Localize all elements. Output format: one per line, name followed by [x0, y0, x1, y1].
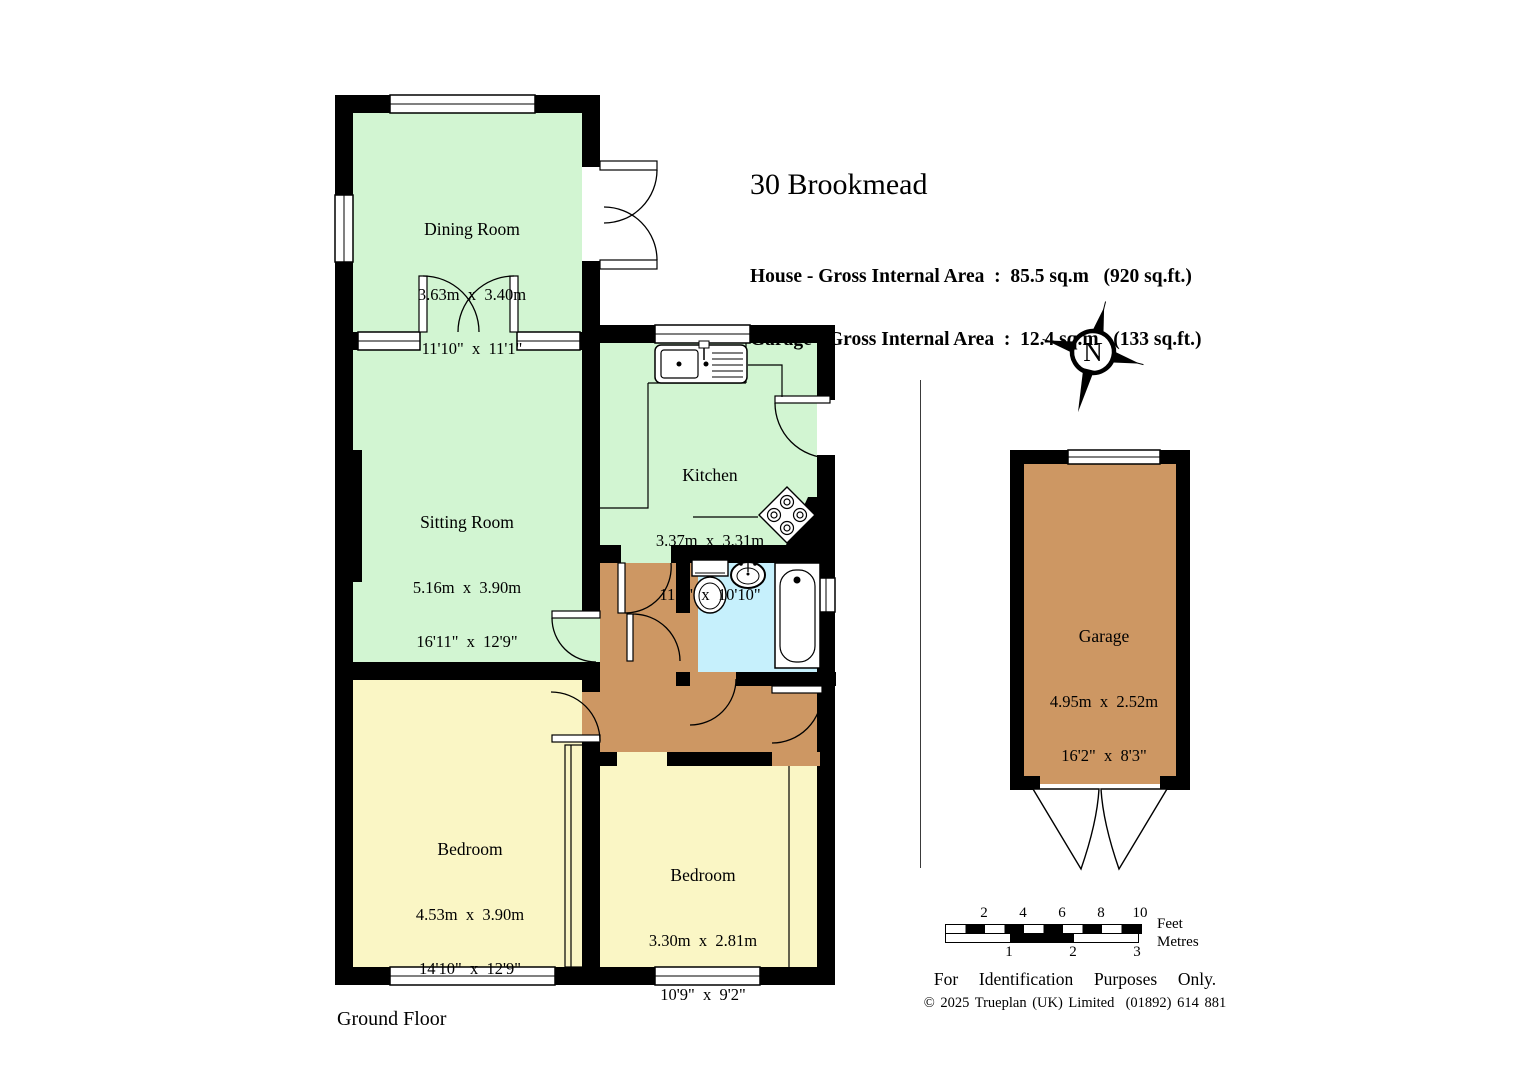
room-dims-metric: 3.37m x 3.31m	[656, 532, 764, 550]
garage-area-line: Garage - Gross Internal Area : 12.4 sq.m…	[750, 329, 1202, 350]
room-dims-imperial: 10'9" x 9'2"	[649, 986, 757, 1004]
room-dims-metric: 4.53m x 3.90m	[416, 906, 524, 924]
room-dims-metric: 3.30m x 2.81m	[649, 932, 757, 950]
metres-unit-label: Metres	[1157, 934, 1199, 951]
room-label-bedroom2: Bedroom 3.30m x 2.81m 10'9" x 9'2"	[649, 829, 757, 1040]
area-summary: House - Gross Internal Area : 85.5 sq.m …	[750, 224, 1202, 392]
bath	[775, 563, 820, 668]
room-name: Bedroom	[416, 839, 524, 860]
room-name: Garage	[1050, 626, 1158, 647]
floor-label: Ground Floor	[337, 1008, 446, 1031]
room-label-dining: Dining Room 3.63m x 3.40m 11'10" x 11'1"	[418, 183, 526, 394]
feet-tick: 4	[1019, 905, 1027, 922]
scale-bar: 2 4 6 8 10 1 2 3 Feet Metres	[945, 905, 1205, 965]
room-dims-metric: 5.16m x 3.90m	[413, 579, 521, 597]
room-label-bedroom1: Bedroom 4.53m x 3.90m 14'10" x 12'9"	[416, 803, 524, 1014]
room-label-garage: Garage 4.95m x 2.52m 16'2" x 8'3"	[1050, 590, 1158, 801]
section-divider	[920, 380, 921, 868]
room-name: Kitchen	[656, 465, 764, 486]
room-dims-imperial: 11'10" x 11'1"	[418, 340, 526, 358]
plan-title: 30 Brookmead	[750, 168, 927, 202]
room-label-sitting: Sitting Room 5.16m x 3.90m 16'11" x 12'9…	[413, 476, 521, 687]
room-name: Dining Room	[418, 219, 526, 240]
room-label-kitchen: Kitchen 3.37m x 3.31m 11'0" x 10'10"	[656, 429, 764, 640]
copyright-text: © 2025 Trueplan (UK) Limited (01892) 614…	[924, 995, 1227, 1012]
house-area-line: House - Gross Internal Area : 85.5 sq.m …	[750, 266, 1202, 287]
metre-tick: 2	[1069, 944, 1077, 961]
room-dims-imperial: 14'10" x 12'9"	[416, 960, 524, 978]
metre-tick: 1	[1005, 944, 1013, 961]
feet-tick: 2	[980, 905, 988, 922]
room-dims-imperial: 16'11" x 12'9"	[413, 633, 521, 651]
room-name: Sitting Room	[413, 512, 521, 533]
floorplan-page: N 30 Brookmead House - Gross Internal Ar…	[0, 0, 1528, 1080]
feet-tick: 10	[1133, 905, 1148, 922]
garage-doors	[1033, 789, 1167, 869]
room-dims-imperial: 16'2" x 8'3"	[1050, 747, 1158, 765]
feet-tick: 6	[1058, 905, 1066, 922]
room-name: Bedroom	[649, 865, 757, 886]
metre-tick: 3	[1133, 944, 1141, 961]
room-dims-metric: 4.95m x 2.52m	[1050, 693, 1158, 711]
feet-tick: 8	[1097, 905, 1105, 922]
kitchen-sink	[655, 341, 747, 383]
feet-unit-label: Feet	[1157, 916, 1183, 933]
disclaimer-text: For Identification Purposes Only.	[934, 969, 1216, 990]
room-dims-imperial: 11'0" x 10'10"	[656, 586, 764, 604]
scale-bar-metres	[945, 933, 1139, 943]
chimney-breast	[335, 450, 362, 582]
room-dims-metric: 3.63m x 3.40m	[418, 286, 526, 304]
